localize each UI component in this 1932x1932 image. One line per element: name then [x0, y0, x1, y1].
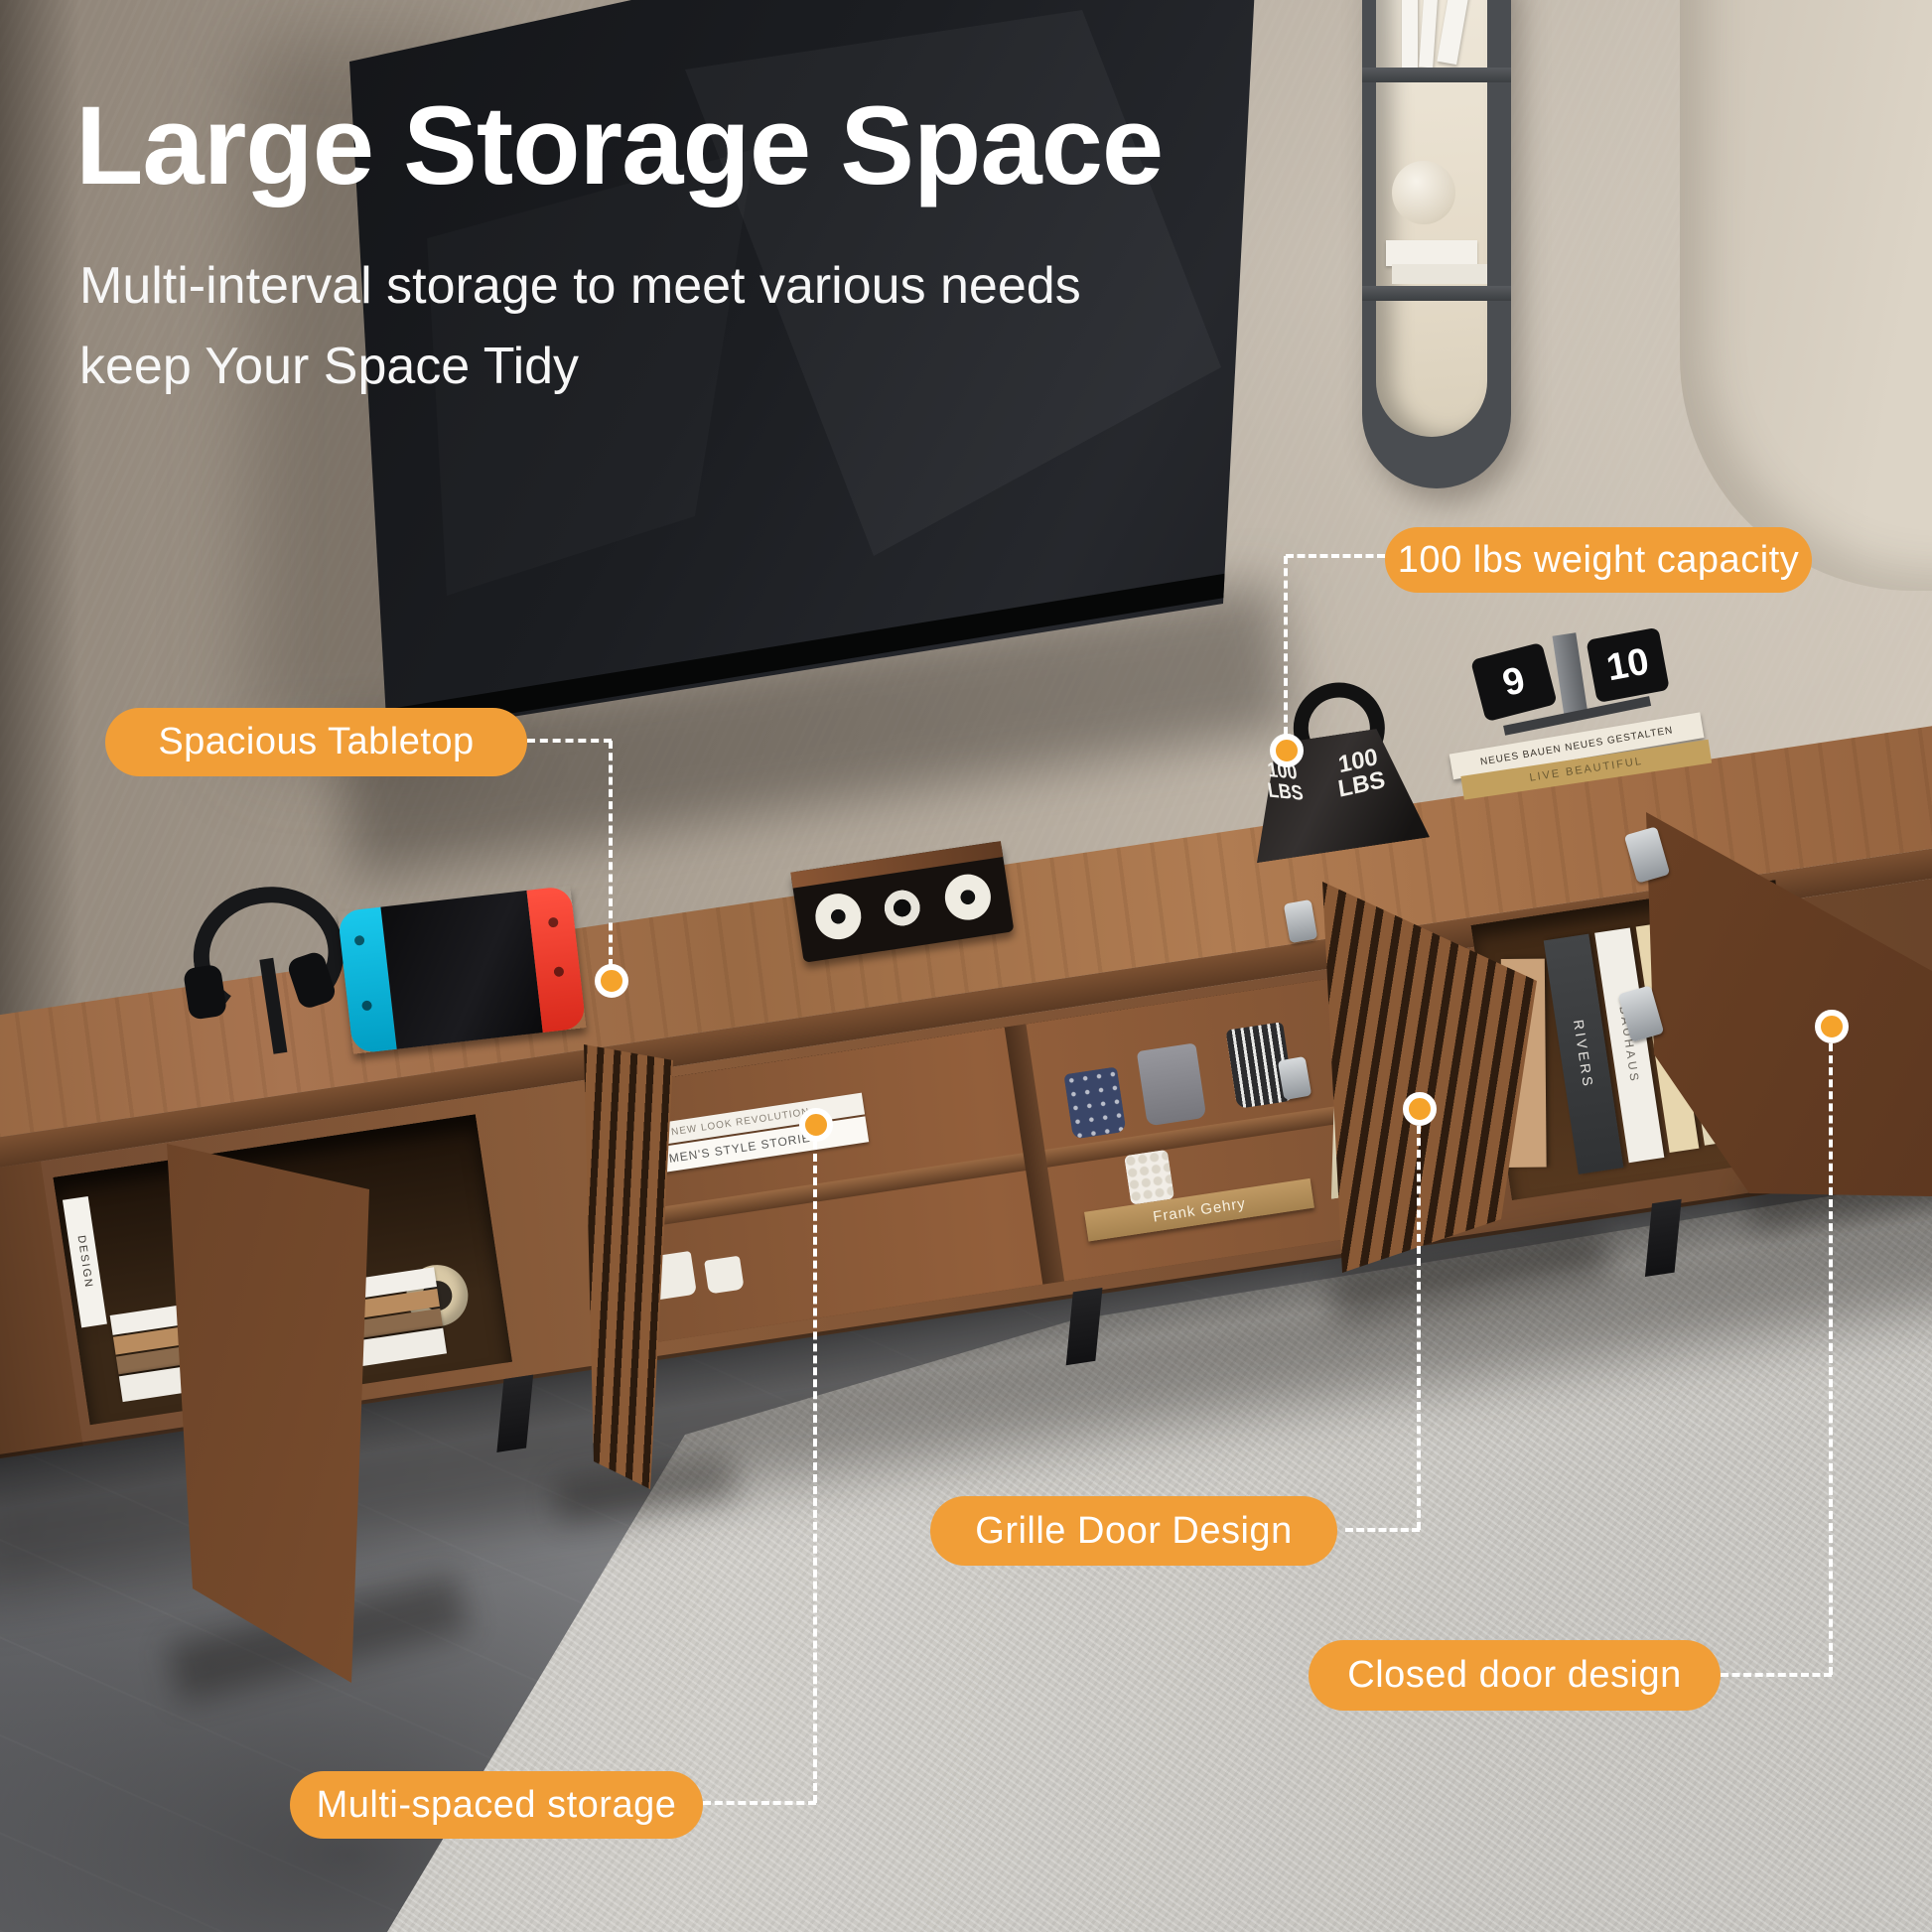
connector-spacious-tabletop: [609, 741, 613, 967]
connector-grille-door: [1345, 1528, 1420, 1532]
page-title: Large Storage Space: [75, 81, 1465, 209]
page-subtitle: Multi-interval storage to meet various n…: [79, 246, 1320, 406]
subtitle-line1: Multi-interval storage to meet various n…: [79, 246, 1320, 327]
subtitle-line2: keep Your Space Tidy: [79, 327, 1320, 407]
anchor-dot-grille: [1403, 1092, 1437, 1126]
connector-spacious-tabletop: [527, 739, 612, 743]
product-infographic: DESIGN bauhaus united kingdom bauhaus TH…: [0, 0, 1932, 1932]
callout-multi-spaced: Multi-spaced storage: [290, 1771, 703, 1839]
callout-closed-door: Closed door design: [1309, 1640, 1721, 1711]
connector-closed-door: [1829, 1043, 1833, 1675]
anchor-dot-tabletop: [595, 964, 628, 998]
connector-closed-door: [1721, 1673, 1832, 1677]
hinge: [1278, 1056, 1312, 1100]
callout-grille-door: Grille Door Design: [930, 1496, 1337, 1566]
callout-weight-capacity: 100 lbs weight capacity: [1385, 527, 1812, 593]
anchor-dot-weight: [1270, 734, 1304, 767]
callout-spacious-tabletop: Spacious Tabletop: [105, 708, 527, 776]
connector-weight-capacity: [1286, 554, 1385, 558]
connector-grille-door: [1417, 1126, 1421, 1530]
connector-multi-spaced: [703, 1801, 816, 1805]
connector-weight-capacity: [1284, 556, 1288, 735]
connector-multi-spaced: [813, 1142, 817, 1803]
anchor-dot-multi-spaced: [799, 1108, 833, 1142]
hinge: [1284, 899, 1318, 943]
anchor-dot-closed: [1815, 1010, 1849, 1043]
